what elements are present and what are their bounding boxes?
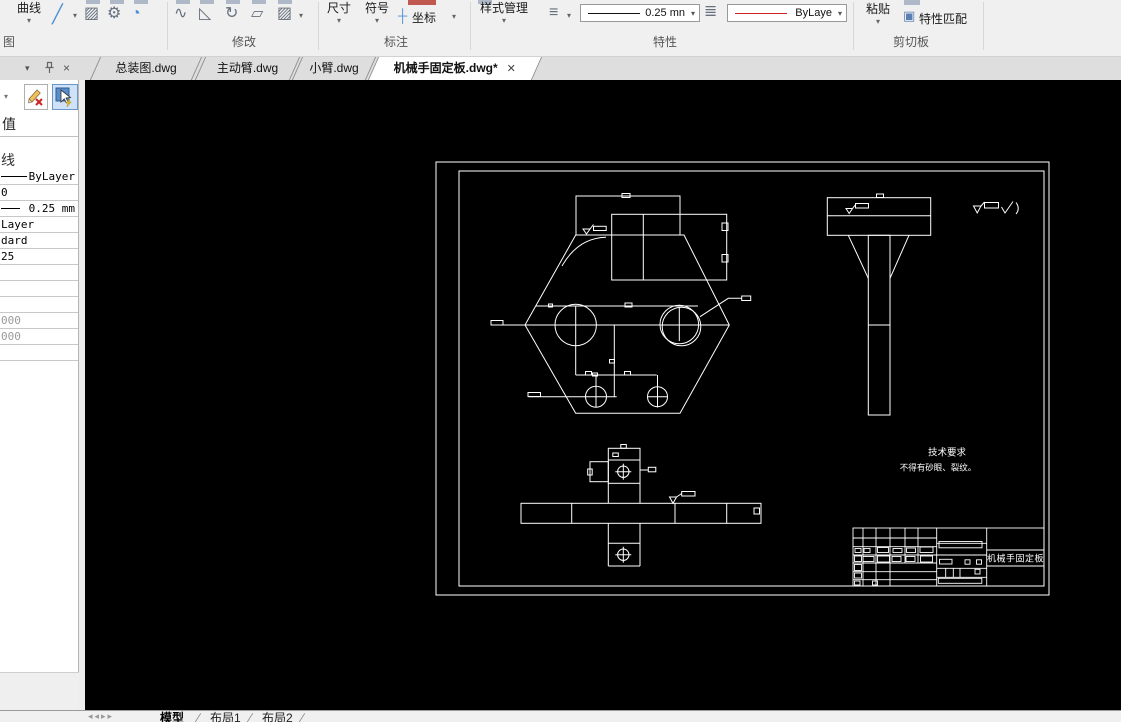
lineweight-list-icon[interactable]: ≣	[704, 3, 717, 21]
match-properties-icon: ▣	[903, 7, 915, 25]
layout-tab-bar: ◂◂▸▸ 模型 / 布局1 / 布局2 /	[0, 710, 1121, 722]
value-column-header: 值	[0, 112, 78, 137]
style-manager-dropdown-button[interactable]: 样式管理 ▾	[475, 1, 533, 25]
clipped-icon-fragment	[110, 0, 124, 4]
tab-manipulator-plate-active[interactable]: 机械手固定板.dwg*✕	[368, 57, 542, 80]
sweep-tool-icon[interactable]: ∿	[174, 5, 187, 23]
chevron-down-icon: ▾	[834, 9, 846, 18]
paste-dropdown-button[interactable]: 粘贴 ▾	[860, 2, 896, 26]
bottom-view	[521, 445, 761, 567]
clipped-icon-fragment	[252, 0, 266, 4]
pie-arc-tool-icon[interactable]: ◔	[131, 5, 141, 23]
hexagon-plate-view	[491, 194, 751, 414]
tab-small-arm[interactable]: 小臂.dwg	[292, 57, 376, 80]
surface-finish-symbol	[846, 204, 869, 214]
cad-drawing: 技术要求 不得有砂眼、裂纹。 机械手固定板	[85, 80, 1121, 710]
property-row-lineweight[interactable]: 0.25 mm	[0, 201, 78, 217]
chevron-down-icon: ▾	[687, 9, 699, 18]
gear-tool-icon[interactable]: ⚙	[107, 5, 121, 23]
property-value: ByLayer	[29, 169, 75, 184]
cad-application-window: 曲线 ▾ ╱ ▾ ▨ ⚙ ◔ 图 ∿ ◺ ↻ ▱ ▨ ▾ 修改 尺寸 ▾ 符号 …	[0, 0, 1121, 722]
clipped-icon-fragment	[86, 0, 100, 4]
property-row-color[interactable]: ByLayer	[0, 169, 78, 185]
chevron-down-icon: ▾	[8, 16, 50, 25]
coordinate-icon: ┼	[398, 7, 407, 25]
quick-select-toggle-button[interactable]	[52, 84, 78, 110]
linetype-icon[interactable]: ≡	[549, 4, 558, 22]
paste-label: 粘贴	[860, 2, 896, 17]
color-combobox[interactable]: ByLaye ▾	[727, 4, 847, 22]
surface-finish-symbol	[670, 492, 696, 504]
cursor-lightning-icon	[53, 85, 77, 109]
edit-cancel-button[interactable]	[24, 84, 48, 110]
property-row[interactable]	[0, 281, 78, 297]
tab-label: 主动臂.dwg	[201, 57, 294, 80]
lineweight-line-sample	[1, 208, 20, 209]
curve-label: 曲线	[8, 1, 50, 16]
match-properties-button[interactable]: 特性匹配	[919, 10, 967, 27]
group-label-clipboard: 剪切板	[893, 33, 929, 50]
coordinate-button[interactable]: 坐标	[412, 9, 436, 26]
line-tool-icon[interactable]: ╱	[52, 5, 63, 23]
chevron-down-icon: ▾	[475, 16, 533, 25]
title-block-part-name: 机械手固定板	[987, 553, 1044, 564]
property-row[interactable]: Layer	[0, 217, 78, 233]
bylayer-line-sample	[1, 176, 27, 177]
tab-layout1[interactable]: 布局1	[210, 711, 241, 722]
chevron-down-icon[interactable]: ▾	[4, 92, 8, 101]
panel-pin-icon[interactable]	[44, 61, 55, 77]
tab-separator: /	[297, 711, 306, 722]
dimension-label: 尺寸	[322, 1, 356, 16]
hatch-tool-icon[interactable]: ▨	[84, 5, 99, 23]
group-separator	[983, 2, 984, 50]
property-grid: 值 线 ByLayer 0 0.25 mm Layer dard 25 000 …	[0, 112, 78, 361]
clipped-copy-icon-fragment	[904, 0, 920, 5]
stretch-tool-icon[interactable]: ▱	[251, 5, 263, 23]
chevron-down-icon: ▾	[322, 16, 356, 25]
panel-collapse-icon[interactable]: ▾	[25, 63, 30, 74]
color-value: ByLaye	[787, 7, 834, 19]
clipped-icon-fragment	[200, 0, 214, 4]
group-separator	[318, 2, 319, 50]
group-separator	[167, 2, 168, 50]
group-label-modify: 修改	[232, 33, 256, 50]
chamfer-tool-icon[interactable]: ◺	[199, 5, 211, 23]
chevron-down-icon[interactable]: ▾	[567, 11, 571, 20]
chevron-down-icon: ▾	[360, 16, 394, 25]
symbol-label: 符号	[360, 1, 394, 16]
rotate-tool-icon[interactable]: ↻	[225, 5, 238, 23]
group-separator	[853, 2, 854, 50]
clipped-icon-fragment	[226, 0, 240, 4]
property-row[interactable]: 0	[0, 185, 78, 201]
tab-label: 小臂.dwg	[298, 57, 370, 80]
property-row[interactable]	[0, 297, 78, 313]
tab-close-icon[interactable]: ✕	[507, 63, 516, 75]
group-label-properties: 特性	[653, 33, 677, 50]
chevron-down-icon[interactable]: ▾	[73, 11, 77, 20]
surface-finish-symbol	[583, 225, 606, 235]
property-row[interactable]	[0, 137, 78, 153]
group-separator	[470, 2, 471, 50]
color-sample-line	[735, 13, 787, 14]
group-label-annotate: 标注	[384, 33, 408, 50]
tab-layout2[interactable]: 布局2	[262, 711, 293, 722]
symbol-dropdown-button[interactable]: 符号 ▾	[360, 1, 394, 25]
property-category-row[interactable]: 线	[0, 153, 78, 169]
general-roughness-symbol	[974, 202, 1019, 215]
model-space-canvas[interactable]: 技术要求 不得有砂眼、裂纹。 机械手固定板	[85, 80, 1121, 710]
properties-panel: ▾ 值 线 ByLayer	[0, 80, 79, 672]
clipped-icon-fragment	[176, 0, 190, 4]
style-manager-label: 样式管理	[475, 1, 533, 16]
chevron-down-icon[interactable]: ▾	[299, 11, 303, 20]
clipped-icon-fragment	[134, 0, 148, 4]
clipped-sheet-icon-fragment	[408, 0, 436, 5]
tab-label: 机械手固定板.dwg*	[394, 61, 498, 75]
tech-requirements-title: 技术要求	[928, 447, 967, 459]
property-row[interactable]: dard	[0, 233, 78, 249]
tab-model[interactable]: 模型	[160, 711, 184, 722]
panel-mini-toolbar: ▾	[0, 82, 78, 112]
tab-assembly-drawing[interactable]: 总装图.dwg	[90, 57, 202, 80]
panel-close-icon[interactable]: ×	[63, 61, 70, 75]
clipped-icon-fragment	[278, 0, 292, 4]
tab-label: 总装图.dwg	[96, 57, 196, 80]
tech-requirements-note: 不得有砂眼、裂纹。	[900, 463, 977, 473]
lineweight-sample-line	[588, 13, 640, 14]
group-label-draw: 图	[3, 33, 15, 50]
pencil-red-x-icon	[25, 85, 47, 109]
hatch-edit-tool-icon[interactable]: ▨	[277, 5, 292, 23]
dimension-dropdown-button[interactable]: 尺寸 ▾	[322, 1, 356, 25]
ribbon-toolbar: 曲线 ▾ ╱ ▾ ▨ ⚙ ◔ 图 ∿ ◺ ↻ ▱ ▨ ▾ 修改 尺寸 ▾ 符号 …	[0, 0, 1121, 57]
property-value: 0.25 mm	[29, 201, 75, 216]
chevron-down-icon: ▾	[860, 17, 896, 26]
side-view	[827, 194, 930, 415]
chevron-down-icon[interactable]: ▾	[452, 12, 456, 21]
property-row[interactable]: 25	[0, 249, 78, 265]
property-row[interactable]: 000	[0, 313, 78, 329]
property-row[interactable]: 000	[0, 329, 78, 345]
lineweight-value: 0.25 mn	[640, 7, 687, 19]
lineweight-combobox[interactable]: 0.25 mn ▾	[580, 4, 700, 22]
property-row[interactable]	[0, 265, 78, 281]
tab-active-arm[interactable]: 主动臂.dwg	[195, 57, 300, 80]
sheet-frame	[436, 162, 1049, 595]
tab-separator: /	[193, 711, 202, 722]
curve-dropdown-button[interactable]: 曲线 ▾	[8, 1, 50, 25]
tab-separator: /	[245, 711, 254, 722]
layout-nav-arrows[interactable]: ◂◂▸▸	[88, 711, 114, 722]
property-row[interactable]	[0, 345, 78, 361]
